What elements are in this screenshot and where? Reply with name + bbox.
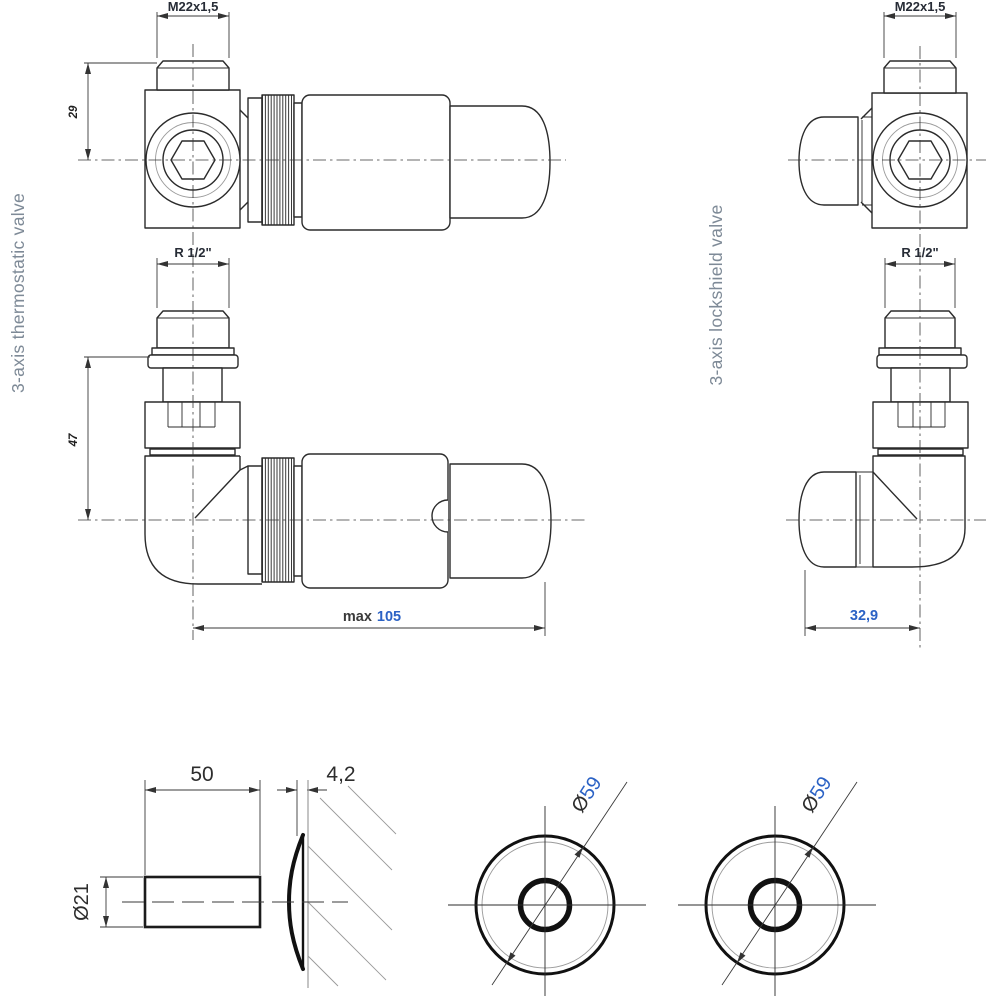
dim-label-d59-left: Ø59 — [567, 773, 606, 817]
title-lockshield-valve: 3-axis lockshield valve — [706, 204, 726, 385]
dim-label-32-9: 32,9 — [850, 608, 878, 624]
title-thermostatic-valve: 3-axis thermostatic valve — [8, 193, 28, 393]
dim-label-max105: max105 — [343, 609, 401, 625]
rosette-front-view-right: Ø59 — [678, 773, 876, 996]
dim-label-47: 47 — [68, 433, 80, 447]
dim-label-50: 50 — [190, 763, 213, 786]
lockshield-valve-side-view — [799, 311, 968, 567]
rosette-front-view-left: Ø59 — [448, 773, 646, 996]
dim-label-d59-right: Ø59 — [797, 773, 836, 817]
dim-label-m22-right: M22x1,5 — [895, 0, 946, 14]
dim-47: 47 — [68, 357, 150, 520]
dim-label-4-2: 4,2 — [326, 763, 355, 786]
dim-label-29: 29 — [68, 105, 80, 119]
dim-max-105: max105 — [193, 582, 545, 636]
dim-label-m22-left: M22x1,5 — [168, 0, 219, 14]
dim-29: 29 — [68, 63, 157, 160]
lockshield-valve-top-view — [799, 61, 967, 228]
pipe-and-rosette-section: 50 4,2 Ø21 — [71, 763, 396, 988]
dim-label-d21: Ø21 — [71, 883, 93, 921]
thermostatic-valve-top-view — [145, 61, 550, 230]
thermostatic-valve-side-view — [145, 311, 551, 588]
technical-drawing: M22x1,5 29 — [0, 0, 1000, 1000]
dim-32-9: 32,9 — [805, 570, 920, 636]
